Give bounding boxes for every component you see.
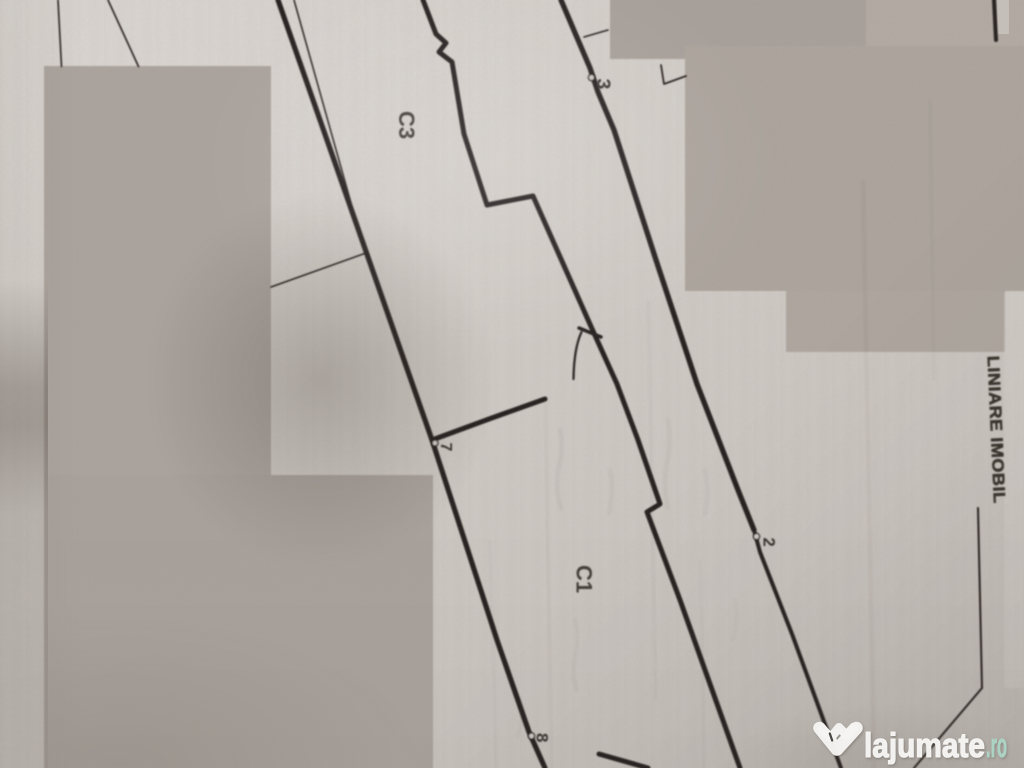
svg-text:lajumate: lajumate <box>864 727 985 765</box>
svg-text:.ro: .ro <box>986 727 1007 765</box>
